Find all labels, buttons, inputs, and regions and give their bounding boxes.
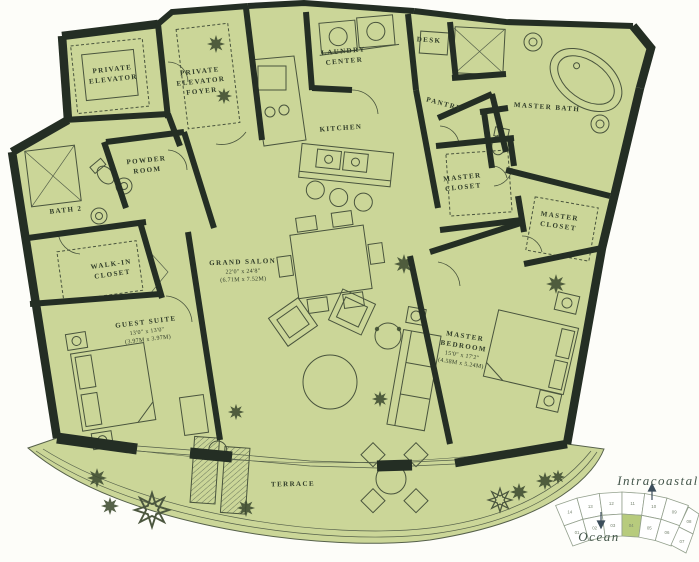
keyplan-unit-number: 06 <box>665 530 670 535</box>
keyplan-unit-number: 13 <box>588 504 593 509</box>
floorplan-drawing: 1413121110090102030405060807 <box>0 0 699 562</box>
keyplan-unit-number: 03 <box>610 523 615 528</box>
keyplan-unit-number: 08 <box>687 519 692 524</box>
ocean-label: Ocean <box>578 529 619 545</box>
keyplan-unit-number: 05 <box>647 525 652 530</box>
keyplan-unit-number: 12 <box>609 501 614 506</box>
keyplan-unit-number: 04 <box>629 523 634 528</box>
floorplan-page: 1413121110090102030405060807 PRIVATE ELE… <box>0 0 699 562</box>
keyplan-unit-number: 09 <box>672 509 677 514</box>
keyplan-unit-number: 11 <box>630 501 635 506</box>
keyplan-unit-number: 14 <box>567 509 572 514</box>
keyplan: 1413121110090102030405060807 <box>556 484 699 553</box>
keyplan-unit-number: 10 <box>651 504 656 509</box>
intracoastal-label: Intracoastal <box>617 473 699 489</box>
keyplan-unit-number: 07 <box>680 539 685 544</box>
